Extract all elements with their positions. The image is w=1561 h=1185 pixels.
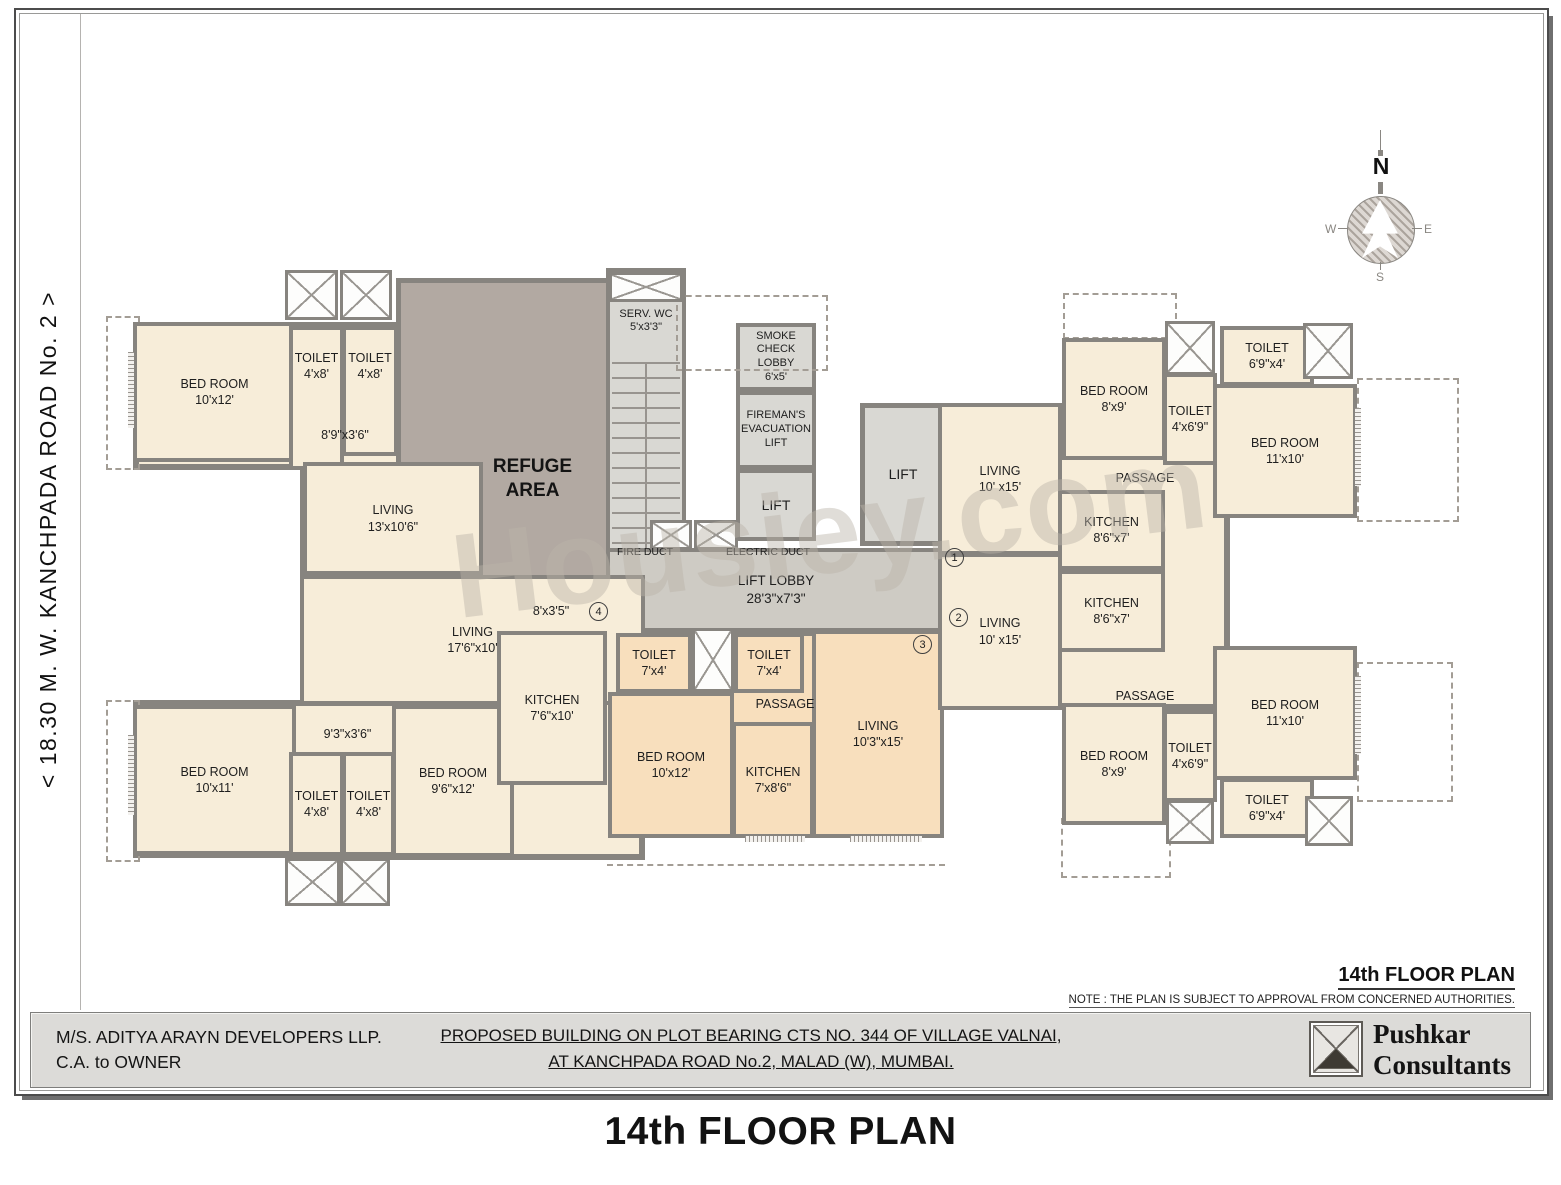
room-toilet: TOILET7'x4' (616, 633, 692, 693)
shaft-icon (1303, 323, 1353, 379)
shaft-icon (1166, 800, 1214, 844)
room-kitchen: KITCHEN7'x8'6" (732, 722, 814, 838)
passage-label: PASSAGE (740, 697, 830, 712)
title-block-bar: M/S. ADITYA ARAYN DEVELOPERS LLP. C.A. t… (30, 1012, 1531, 1088)
room-bedroom: BED ROOM10'x12' (608, 692, 734, 838)
lift-1: LIFT (736, 469, 816, 541)
fireman-evacuation-lift: FIREMAN'SEVACUATION LIFT (736, 391, 816, 469)
room-toilet: TOILET6'9"x4' (1220, 326, 1314, 386)
room-kitchen: KITCHEN7'6"x10' (497, 631, 607, 785)
shaft-icon (285, 270, 338, 320)
sheet-title: 14th FLOOR PLAN (0, 1110, 1561, 1154)
unit-number-badge: 3 (913, 635, 932, 654)
passage-dims-label: 8'9"x3'6" (295, 428, 395, 443)
dashed-bottom-right (1061, 818, 1171, 878)
compass-tick-west (1338, 228, 1348, 229)
consultant-block: Pushkar Consultants (1373, 1019, 1511, 1081)
plan-note: NOTE : THE PLAN IS SUBJECT TO APPROVAL F… (1069, 994, 1515, 1008)
room-toilet: TOILET4'x6'9" (1163, 373, 1217, 465)
room-bedroom: BED ROOM9'6"x12' (392, 705, 514, 857)
lift-lobby: LIFT LOBBY28'3"x7'3" (606, 548, 946, 632)
window-mark (128, 352, 134, 428)
passage-label: PASSAGE (1100, 689, 1190, 704)
pushkar-consultants-logo-icon (1309, 1021, 1363, 1077)
dashed-top-right (1063, 293, 1177, 339)
room-bedroom: BED ROOM10'x11' (133, 705, 296, 855)
window-mark (1355, 408, 1361, 486)
room-toilet: TOILET4'x6'9" (1163, 710, 1217, 802)
compass-south-label: S (1376, 270, 1384, 284)
room-bedroom: BED ROOM8'x9' (1062, 338, 1166, 460)
balcony-dashed-r1 (1357, 378, 1459, 522)
plan-heading-block: 14th FLOOR PLAN NOTE : THE PLAN IS SUBJE… (1069, 964, 1515, 1008)
window-mark (850, 836, 922, 842)
dashed-bottom-center (607, 864, 945, 866)
passage-dims-label: 8'x3'5" (516, 604, 586, 619)
shaft-icon (1165, 321, 1215, 375)
serv-wc-label: SERV. WC5'x3'3" (604, 308, 688, 334)
unit-number-badge: 4 (589, 602, 608, 621)
room-toilet: TOILET6'9"x4' (1220, 778, 1314, 838)
room-toilet: TOILET7'x4' (734, 633, 804, 693)
compass-tick-south (1380, 262, 1381, 270)
room-living: LIVING10'3"x15' (812, 630, 944, 838)
shaft-icon (340, 858, 390, 906)
window-mark (745, 836, 805, 842)
shaft-icon (1305, 796, 1353, 846)
electric-duct-label: ELECTRIC DUCT (718, 546, 818, 559)
room-bedroom: BED ROOM11'x10' (1213, 384, 1357, 518)
floor-plan-sheet: < 18.30 M. W. KANCHPADA ROAD No. 2 > N W… (0, 0, 1561, 1185)
compass-needle-line (1380, 130, 1381, 152)
project-description-block: PROPOSED BUILDING ON PLOT BEARING CTS NO… (431, 1023, 1071, 1076)
fire-duct-label: FIRE DUCT (600, 546, 690, 559)
plan-heading-title: 14th FLOOR PLAN (1338, 964, 1515, 990)
shaft-icon (340, 270, 392, 320)
room-toilet: TOILET4'x8' (289, 752, 344, 856)
refuge-area-label: REFUGE AREA (450, 455, 615, 503)
room-bedroom: BED ROOM10'x12' (133, 322, 296, 462)
room-bedroom: BED ROOM8'x9' (1062, 703, 1166, 825)
room-toilet: TOILET4'x8' (289, 326, 344, 470)
compass-west-label: W (1325, 222, 1336, 236)
compass-east-label: E (1424, 222, 1432, 236)
room-kitchen: KITCHEN8'6"x7' (1058, 490, 1165, 570)
passage-dims-label: 9'3"x3'6" (300, 727, 395, 742)
shaft-icon (285, 858, 340, 906)
road-strip-divider (80, 14, 81, 1010)
window-mark (1355, 676, 1361, 754)
room-bedroom: BED ROOM11'x10' (1213, 646, 1357, 780)
unit-number-badge: 1 (945, 548, 964, 567)
window-mark (128, 735, 134, 815)
unit-number-badge: 2 (949, 608, 968, 627)
room-kitchen: KITCHEN8'6"x7' (1058, 570, 1165, 652)
room-living: LIVING10' x15' (938, 403, 1062, 555)
dashed-top-center (676, 295, 828, 371)
compass-north-label: N (1366, 153, 1396, 180)
room-toilet: TOILET4'x8' (342, 752, 395, 856)
passage-label: PASSAGE (1100, 471, 1190, 486)
balcony-dashed-r2 (1357, 662, 1453, 802)
stair-shaft-icon (609, 272, 683, 302)
developer-block: M/S. ADITYA ARAYN DEVELOPERS LLP. C.A. t… (56, 1025, 382, 1076)
lift-2: LIFT (860, 403, 946, 546)
room-living: LIVING10' x15' (938, 553, 1062, 710)
compass-tick-east (1412, 228, 1422, 229)
compass-needle-bar2 (1378, 182, 1383, 194)
road-label: < 18.30 M. W. KANCHPADA ROAD No. 2 > (20, 170, 76, 910)
shaft-icon (692, 628, 734, 692)
